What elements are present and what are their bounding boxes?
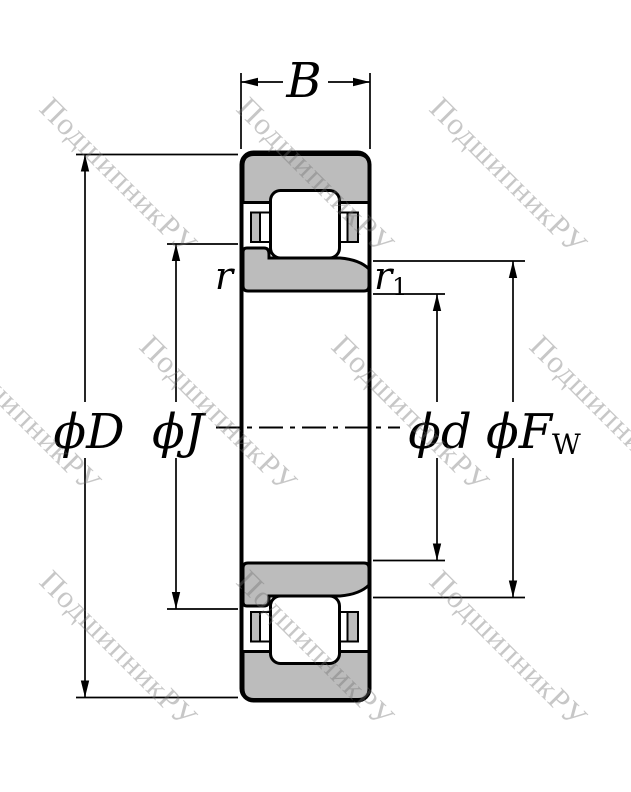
raceway-diameter-label-main: ϕF xyxy=(486,404,554,460)
inner-chamfer-label-subscript: 1 xyxy=(392,273,407,301)
bearing-drawing-page: B ϕD ϕJ ϕd ϕFW r r1 ПодшипникРУ Подшипни… xyxy=(0,0,631,792)
cage-bar-lower-right xyxy=(348,612,359,642)
arrowhead-down-icon xyxy=(81,681,89,698)
raceway-diameter-label: ϕFW xyxy=(486,404,581,461)
width-label: B xyxy=(285,53,321,109)
bearing-cross-section-diagram: B ϕD ϕJ ϕd ϕFW r r1 ПодшипникРУ Подшипни… xyxy=(0,0,631,792)
arrowhead-down-icon xyxy=(433,544,441,561)
watermark-text: ПодшипникРУ xyxy=(33,563,204,734)
outer-chamfer-label: r xyxy=(215,254,236,298)
raceway-diameter-label-subscript: W xyxy=(552,428,581,461)
arrowhead-down-icon xyxy=(509,581,517,598)
watermark-text: ПодшипникРУ xyxy=(423,563,594,734)
arrowhead-right-icon xyxy=(353,78,370,86)
watermark-text: ПодшипникРУ xyxy=(33,90,204,261)
arrowhead-up-icon xyxy=(509,261,517,278)
watermark-text: ПодшипникРУ xyxy=(423,90,594,261)
arrowhead-left-icon xyxy=(241,78,258,86)
arrowhead-down-icon xyxy=(172,592,180,609)
cage-bar-upper-left xyxy=(251,213,260,243)
arrowhead-up-icon xyxy=(433,294,441,311)
